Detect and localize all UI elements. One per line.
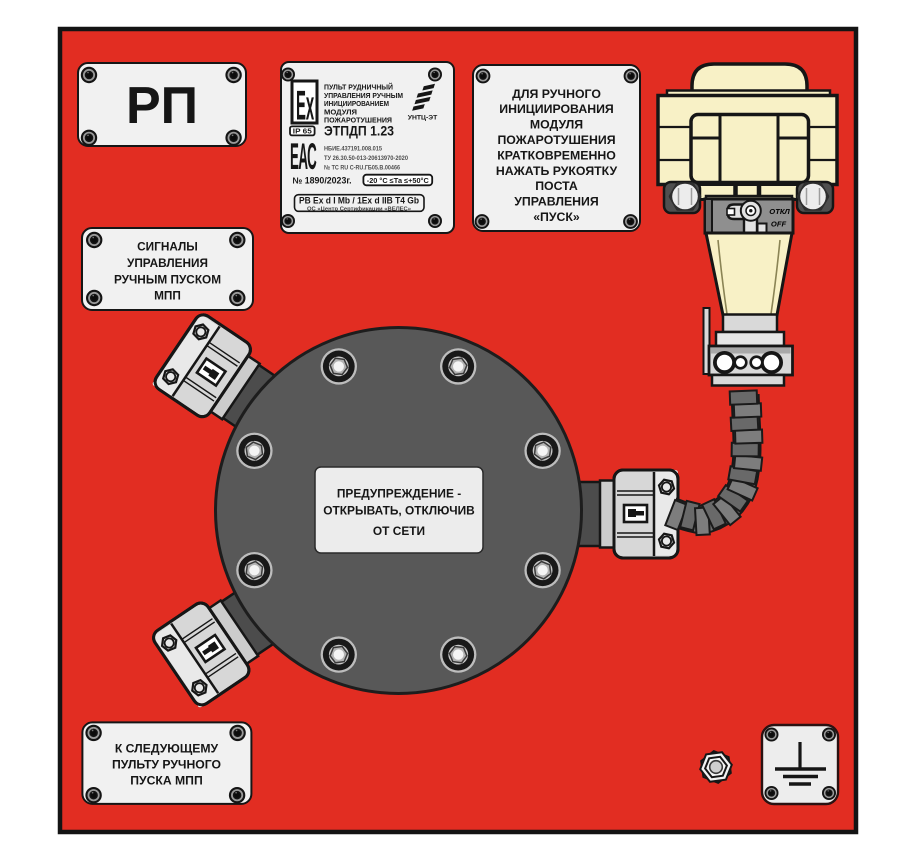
svg-text:-20 °С ≤Та ≤+50°С: -20 °С ≤Та ≤+50°С xyxy=(367,176,429,185)
svg-text:КРАТКОВРЕМЕННО: КРАТКОВРЕМЕННО xyxy=(497,148,616,162)
svg-text:ПУСКА МПП: ПУСКА МПП xyxy=(130,774,202,788)
svg-text:МПП: МПП xyxy=(154,289,181,303)
svg-text:ЕАС: ЕАС xyxy=(290,136,317,177)
svg-text:ТУ 26.30.50-013-20613970-2020: ТУ 26.30.50-013-20613970-2020 xyxy=(324,155,408,162)
svg-text:Ex: Ex xyxy=(296,82,315,129)
svg-text:ПОЖАРОТУШЕНИЯ: ПОЖАРОТУШЕНИЯ xyxy=(497,133,615,147)
svg-text:ЭТПДП 1.23: ЭТПДП 1.23 xyxy=(324,123,394,139)
svg-text:ОТКРЫВАТЬ, ОТКЛЮЧИВ: ОТКРЫВАТЬ, ОТКЛЮЧИВ xyxy=(323,504,475,518)
svg-text:ДЛЯ РУЧНОГО: ДЛЯ РУЧНОГО xyxy=(512,87,601,101)
svg-text:ПРЕДУПРЕЖДЕНИЕ -: ПРЕДУПРЕЖДЕНИЕ - xyxy=(337,487,461,501)
svg-text:УПРАВЛЕНИЯ: УПРАВЛЕНИЯ xyxy=(127,256,208,270)
svg-text:OFF: OFF xyxy=(771,220,787,229)
svg-text:УПРАВЛЕНИЯ: УПРАВЛЕНИЯ xyxy=(514,195,599,209)
svg-text:ОТ СЕТИ: ОТ СЕТИ xyxy=(373,524,425,538)
svg-text:МОДУЛЯ: МОДУЛЯ xyxy=(530,118,583,132)
svg-text:№ ТС RU С-RU.ГБ05.В.00466: № ТС RU С-RU.ГБ05.В.00466 xyxy=(324,165,400,172)
svg-text:УНТЦ-ЭТ: УНТЦ-ЭТ xyxy=(408,115,438,122)
svg-text:ОТКЛ: ОТКЛ xyxy=(769,207,790,216)
svg-text:РВ Ex d I Mb / 1Ex d IIB T4 Gb: РВ Ex d I Mb / 1Ex d IIB T4 Gb xyxy=(299,196,419,206)
svg-text:ПУЛЬТУ РУЧНОГО: ПУЛЬТУ РУЧНОГО xyxy=(112,758,221,772)
svg-text:ПОСТА: ПОСТА xyxy=(535,179,578,193)
svg-text:IP 65: IP 65 xyxy=(293,127,312,136)
svg-text:ОС «Центр Сертификации «ВЕЛЕС»: ОС «Центр Сертификации «ВЕЛЕС» xyxy=(307,205,411,212)
svg-text:РП: РП xyxy=(126,77,198,135)
svg-text:«ПУСК»: «ПУСК» xyxy=(533,210,580,224)
svg-text:К СЛЕДУЮЩЕМУ: К СЛЕДУЮЩЕМУ xyxy=(115,742,219,756)
svg-text:РУЧНЫМ ПУСКОМ: РУЧНЫМ ПУСКОМ xyxy=(114,272,221,286)
svg-text:№ 1890/2023г.: № 1890/2023г. xyxy=(293,176,352,186)
svg-text:СИГНАЛЫ: СИГНАЛЫ xyxy=(137,240,198,254)
svg-text:ИНИЦИИРОВАНИЯ: ИНИЦИИРОВАНИЯ xyxy=(499,102,614,116)
svg-text:НАЖАТЬ РУКОЯТКУ: НАЖАТЬ РУКОЯТКУ xyxy=(496,164,618,178)
svg-text:НБИЕ.437191.008.015: НБИЕ.437191.008.015 xyxy=(324,146,382,153)
